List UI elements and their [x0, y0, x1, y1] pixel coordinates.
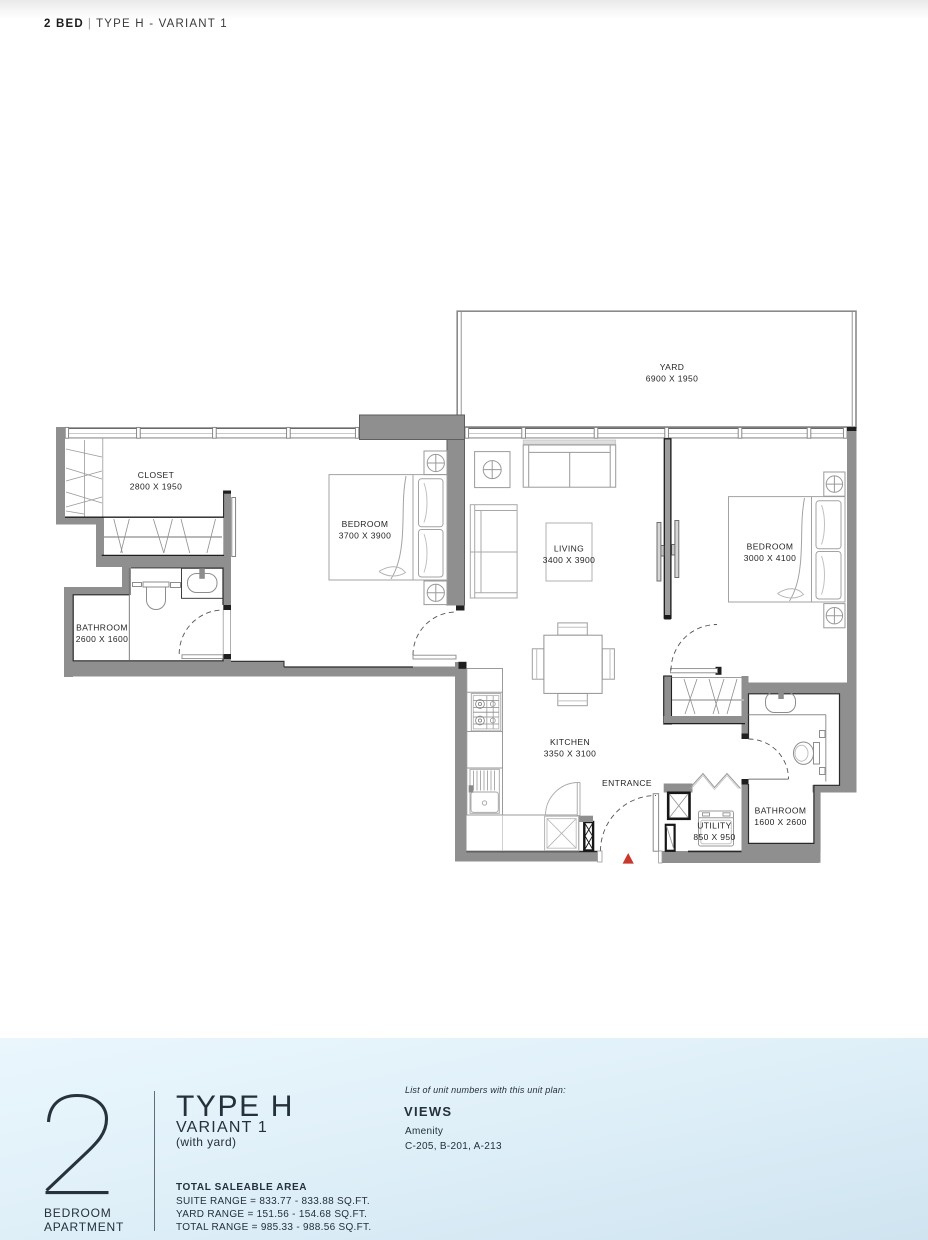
svg-text:3000 X 4100: 3000 X 4100 — [744, 553, 797, 563]
svg-text:BATHROOM: BATHROOM — [76, 623, 128, 633]
svg-text:CLOSET: CLOSET — [138, 470, 174, 480]
svg-text:3400 X 3900: 3400 X 3900 — [543, 555, 596, 565]
svg-text:3700 X 3900: 3700 X 3900 — [339, 531, 392, 541]
svg-text:1600 X 2600: 1600 X 2600 — [754, 817, 807, 827]
svg-text:6900 X 1950: 6900 X 1950 — [646, 374, 699, 384]
svg-text:3350 X 3100: 3350 X 3100 — [544, 749, 597, 759]
svg-text:BEDROOM: BEDROOM — [747, 542, 794, 552]
svg-text:2600 X 1600: 2600 X 1600 — [76, 634, 129, 644]
svg-text:BEDROOM: BEDROOM — [342, 519, 389, 529]
svg-text:BATHROOM: BATHROOM — [755, 806, 807, 816]
svg-text:ENTRANCE: ENTRANCE — [602, 778, 652, 788]
svg-text:UTILITY: UTILITY — [697, 821, 731, 831]
svg-text:850 X 950: 850 X 950 — [693, 832, 735, 842]
svg-text:2800 X 1950: 2800 X 1950 — [130, 482, 183, 492]
svg-text:KITCHEN: KITCHEN — [550, 737, 590, 747]
svg-text:LIVING: LIVING — [554, 544, 584, 554]
svg-text:YARD: YARD — [660, 362, 685, 372]
